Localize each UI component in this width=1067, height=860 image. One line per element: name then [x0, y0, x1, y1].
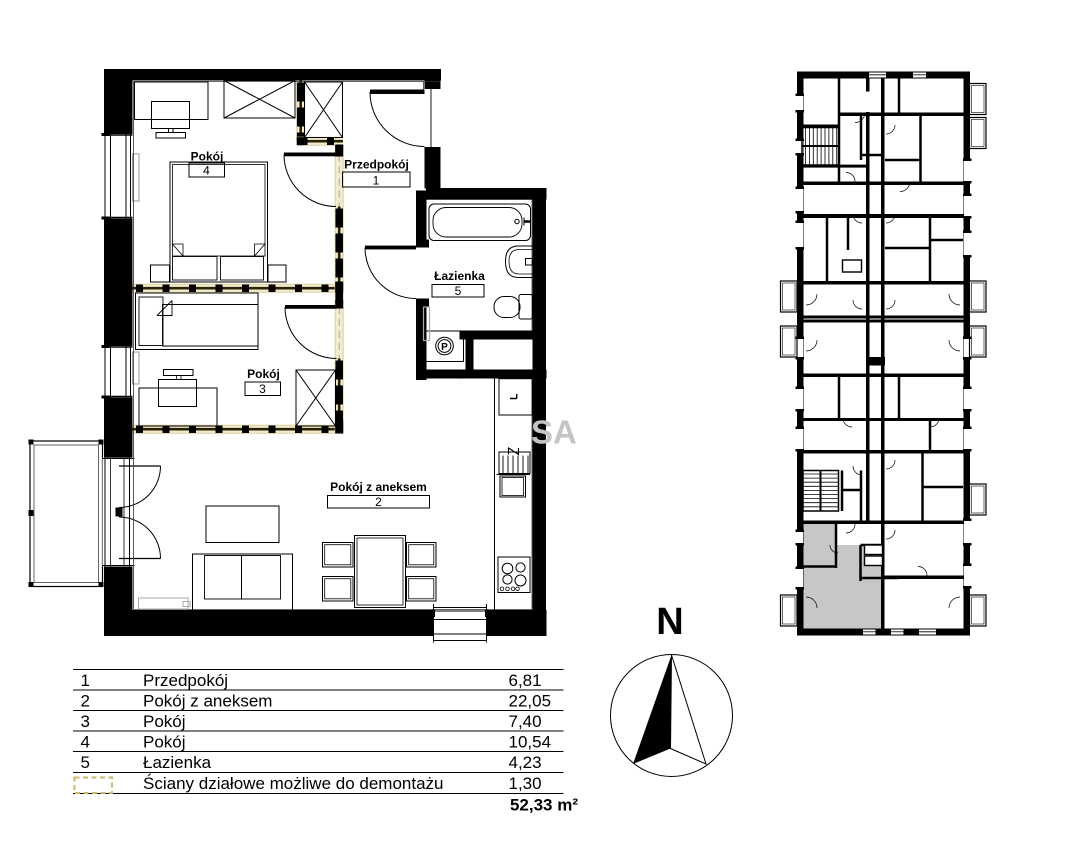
svg-text:1,30: 1,30 [509, 774, 542, 793]
svg-text:Pokój: Pokój [143, 712, 186, 731]
svg-text:SA: SA [531, 414, 577, 451]
svg-text:N: N [656, 601, 683, 643]
svg-text:22,05: 22,05 [509, 692, 552, 711]
svg-text:Pokój z aneksem: Pokój z aneksem [143, 692, 272, 711]
svg-text:Pokój: Pokój [143, 733, 186, 752]
svg-text:Łazienka: Łazienka [434, 269, 485, 283]
svg-text:4,23: 4,23 [509, 753, 542, 772]
svg-text:2: 2 [81, 692, 90, 711]
svg-text:7,40: 7,40 [509, 712, 542, 731]
svg-text:Pokój: Pokój [191, 150, 224, 164]
svg-text:Ściany działowe możliwe do dem: Ściany działowe możliwe do demontażu [143, 774, 444, 793]
svg-text:Łazienka: Łazienka [143, 753, 212, 772]
svg-text:4: 4 [203, 164, 210, 178]
svg-text:3: 3 [259, 382, 266, 396]
svg-text:3: 3 [81, 712, 90, 731]
svg-text:Pokój: Pokój [247, 367, 280, 381]
svg-text:1: 1 [81, 671, 90, 690]
svg-text:4: 4 [81, 733, 90, 752]
svg-text:6,81: 6,81 [509, 671, 542, 690]
svg-text:10,54: 10,54 [509, 733, 552, 752]
svg-text:5: 5 [455, 284, 462, 298]
svg-text:2: 2 [375, 495, 382, 509]
svg-text:1: 1 [373, 174, 380, 188]
svg-text:Pokój z aneksem: Pokój z aneksem [330, 480, 427, 494]
svg-text:Przedpokój: Przedpokój [143, 671, 228, 690]
svg-text:Przedpokój: Przedpokój [344, 158, 409, 172]
svg-text:5: 5 [81, 753, 90, 772]
svg-text:52,33 m²: 52,33 m² [510, 796, 578, 815]
svg-text:P: P [441, 342, 448, 353]
